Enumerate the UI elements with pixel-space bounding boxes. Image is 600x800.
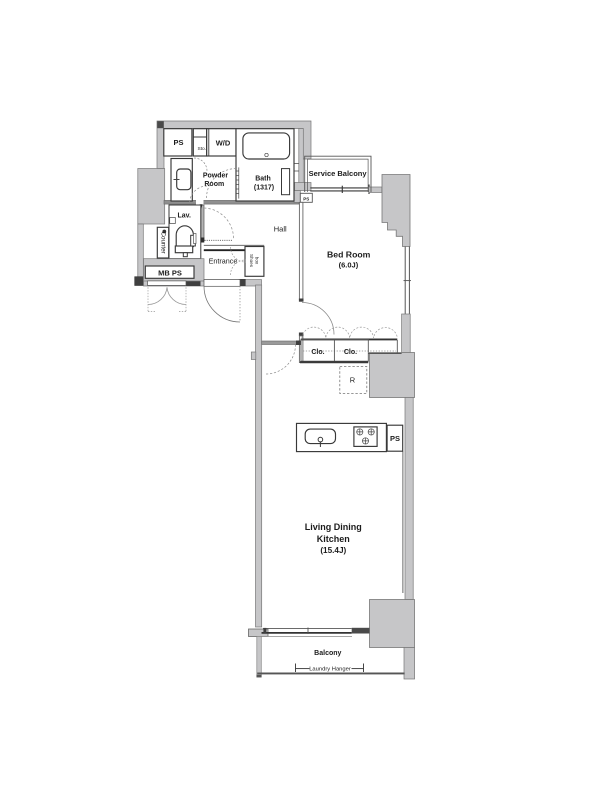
svg-text:Laundry Hanger: Laundry Hanger	[309, 666, 351, 672]
svg-text:Balcony: Balcony	[314, 650, 341, 657]
svg-text:PS: PS	[173, 138, 183, 147]
svg-text:Sto.: Sto.	[198, 146, 207, 152]
svg-text:Shoes: Shoes	[249, 254, 254, 268]
svg-text:Entrance: Entrance	[209, 257, 238, 266]
svg-text:PS: PS	[303, 196, 309, 201]
svg-text:W/D: W/D	[216, 138, 231, 147]
svg-text:(15.4J): (15.4J)	[320, 546, 346, 555]
svg-text:MB PS: MB PS	[158, 268, 182, 277]
svg-text:(1317): (1317)	[254, 184, 274, 191]
svg-text:(6.0J): (6.0J)	[339, 261, 359, 270]
svg-text:Clo.: Clo.	[344, 349, 357, 356]
svg-text:Powder: Powder	[203, 173, 229, 180]
svg-text:Bath: Bath	[255, 176, 271, 183]
svg-text:PS: PS	[390, 434, 400, 443]
svg-text:Lav.: Lav.	[177, 213, 191, 220]
svg-text:Kitchen: Kitchen	[317, 534, 350, 544]
svg-text:Bed Room: Bed Room	[327, 250, 371, 260]
svg-text:Room: Room	[204, 181, 224, 188]
svg-text:Counter: Counter	[160, 232, 167, 254]
svg-text:Living Dining: Living Dining	[305, 522, 362, 532]
svg-text:R: R	[350, 376, 356, 385]
svg-text:box: box	[255, 257, 260, 265]
svg-text:Clo.: Clo.	[311, 349, 324, 356]
svg-text:Service Balcony: Service Balcony	[309, 169, 368, 178]
svg-text:Hall: Hall	[274, 225, 287, 234]
